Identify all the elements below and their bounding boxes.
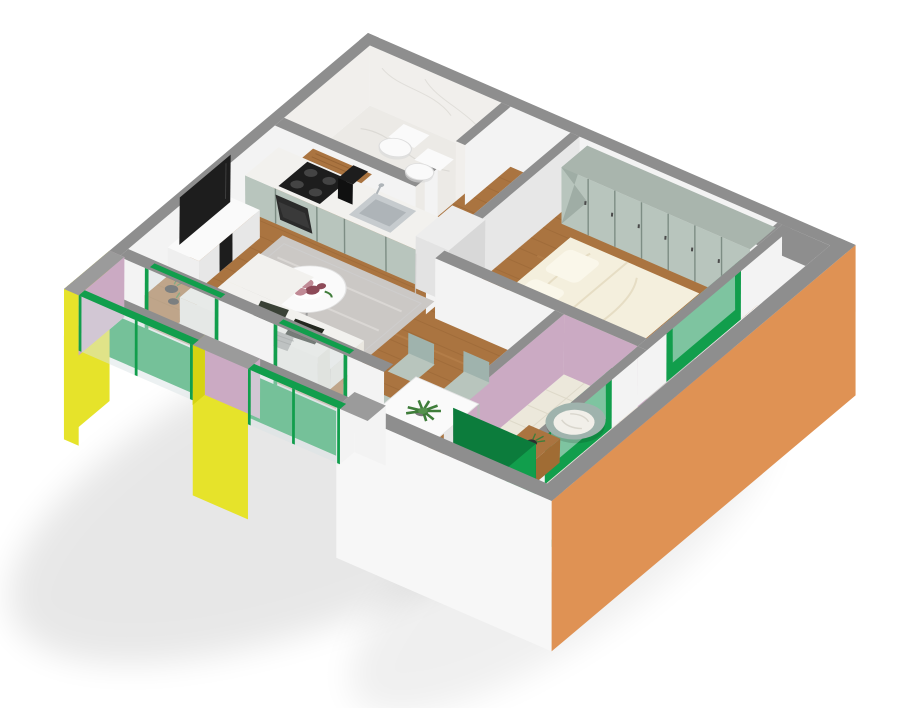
floorplan-render: 3D isometric floor plan render of a one-…: [0, 0, 900, 708]
apartment-3d-scene: 3D isometric floor plan render of a one-…: [0, 0, 900, 708]
